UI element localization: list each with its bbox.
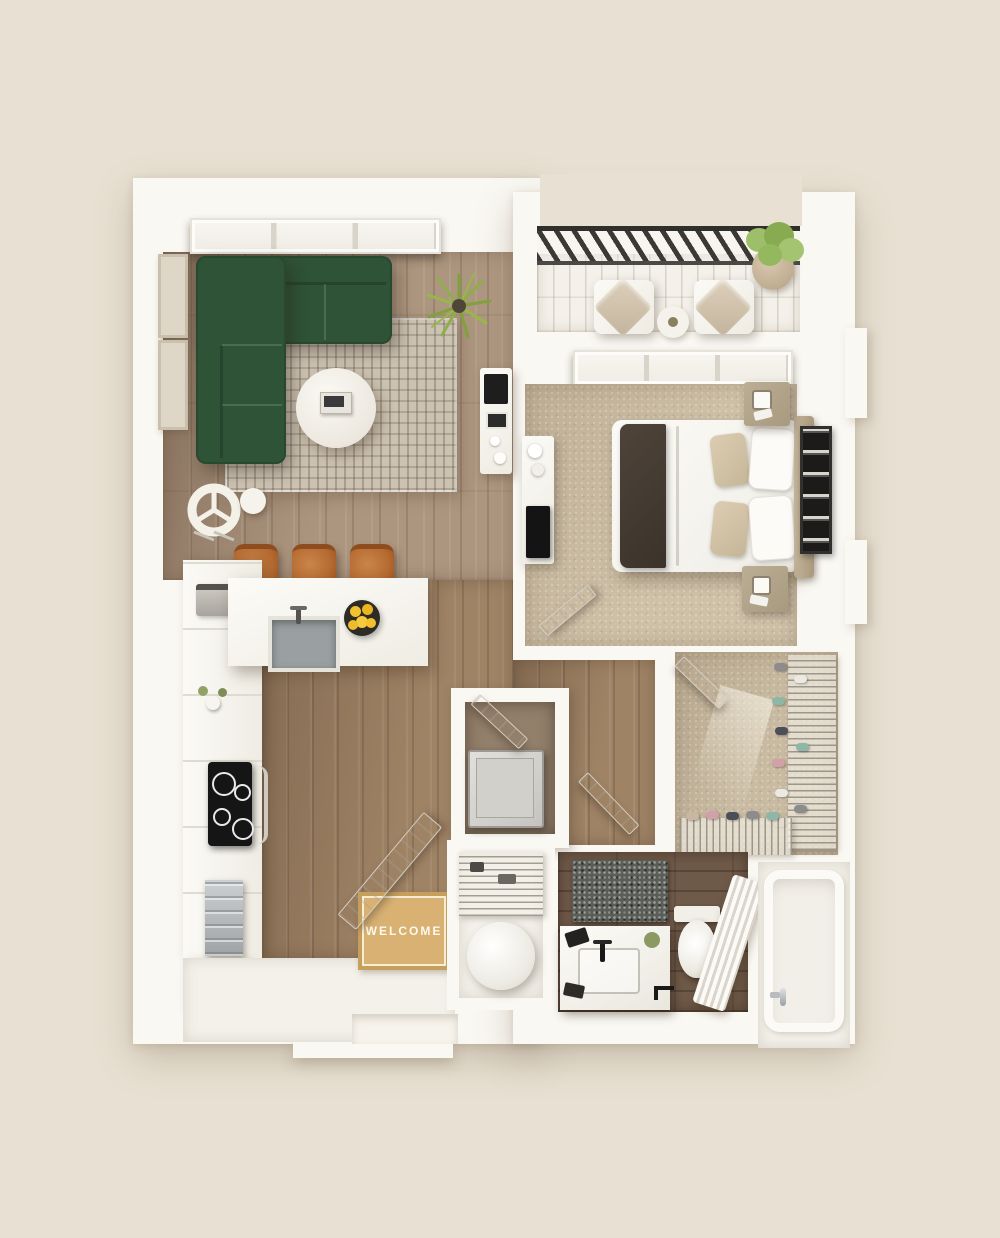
shoe [726, 812, 739, 820]
sofa-seam [324, 284, 326, 340]
burner [213, 808, 231, 826]
door-threshold [352, 1014, 458, 1044]
bath-mat [572, 860, 668, 922]
dresser-speaker [532, 464, 544, 476]
shoe [772, 697, 785, 705]
flower-leaves [218, 688, 227, 697]
laptop [484, 374, 508, 404]
sofa-arm-edge [220, 346, 223, 458]
sofa-seam [222, 404, 282, 406]
shoe [774, 663, 787, 671]
pillow-accent [709, 500, 750, 557]
sectional-sofa-vertical [196, 256, 286, 464]
shoe [706, 811, 719, 819]
balcony-open-notch [540, 174, 802, 226]
sink-faucet-bar [290, 606, 307, 610]
floor-plant [424, 271, 494, 341]
lounge-chair-right [694, 280, 754, 334]
pillow-white [748, 495, 796, 562]
cooktop [208, 762, 252, 846]
shelf-items [498, 874, 516, 884]
pillow-white [748, 427, 796, 492]
shoe [772, 759, 785, 767]
nightstand-top [744, 382, 790, 426]
television [526, 506, 550, 558]
wall-frame-bottom [158, 340, 188, 430]
shoe [775, 727, 788, 735]
book-stack-top [324, 396, 344, 407]
oven-handle [254, 766, 268, 844]
shoe [794, 805, 807, 813]
vanity-faucet-bar [593, 940, 612, 944]
burner [232, 818, 254, 840]
flower-leaves [198, 686, 208, 696]
tub-drain [770, 992, 780, 998]
welcome-mat-text: WELCOME [366, 924, 443, 938]
vanity-sink-outline [578, 948, 640, 994]
shoe-rack-right [788, 655, 836, 850]
shelf-items [470, 862, 484, 872]
balcony-plant-leaves [778, 238, 804, 262]
flower-vase [206, 696, 220, 710]
bathtub [764, 870, 844, 1032]
dresser-speaker [528, 444, 542, 458]
window-panes [195, 223, 436, 249]
bed-throw-blanket [620, 424, 666, 568]
washer-lid [476, 758, 534, 818]
nightstand-lamp [752, 390, 772, 410]
shoe-rack-bottom [680, 818, 792, 855]
water-heater [467, 922, 535, 990]
bistro-table-item [668, 317, 678, 327]
kitchen-sink [268, 616, 340, 672]
desk-mug [490, 436, 500, 446]
wall-pillar-right-2 [845, 540, 867, 624]
shoe [775, 789, 788, 797]
burner [234, 784, 251, 801]
fruit [348, 620, 358, 630]
shoe [794, 675, 807, 683]
chair-cushion [693, 277, 752, 336]
shoe [766, 812, 779, 820]
pillow-accent [709, 432, 751, 488]
dishwasher [205, 880, 243, 956]
balcony-plant-leaves [758, 244, 782, 266]
burner [212, 772, 236, 796]
fruit [362, 604, 373, 615]
wall-frame-top [158, 254, 188, 338]
bedroom-window [573, 350, 793, 386]
window-panes [578, 355, 788, 381]
toilet-paper-holder-arm [654, 986, 658, 1000]
living-room-window [190, 218, 441, 254]
vanity-faucet [600, 942, 605, 962]
shoe [686, 812, 699, 820]
nightstand-lamp [752, 576, 771, 595]
nightstand-phone [749, 594, 768, 607]
wall-pillar-right-1 [845, 328, 867, 418]
sofa-seam [222, 344, 282, 346]
bed-fold-line [676, 426, 679, 566]
desk-mug [494, 452, 506, 464]
tub-faucet [780, 988, 786, 1006]
nightstand-bottom [742, 566, 788, 612]
accent-chair [184, 480, 248, 544]
side-table [240, 488, 266, 514]
bedroom-wall-art [800, 426, 832, 554]
lounge-chair-left [594, 280, 654, 334]
sink-faucet [296, 608, 301, 624]
floor-plan-scene: WELCOME [0, 0, 1000, 1238]
shoe [796, 743, 809, 751]
fruit [366, 618, 376, 628]
vanity-plant [644, 932, 660, 948]
chair-cushion [593, 277, 652, 336]
desk-tablet [486, 412, 508, 429]
shoe [746, 811, 759, 819]
espresso-machine [196, 584, 232, 616]
